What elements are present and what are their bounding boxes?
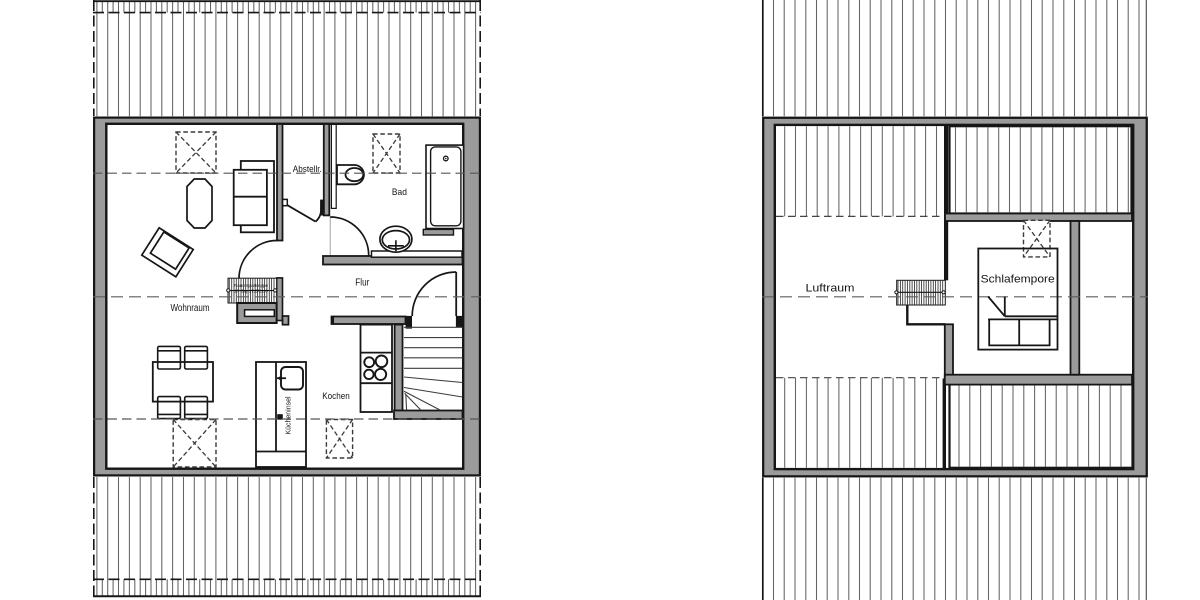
svg-text:Flur: Flur: [355, 277, 370, 288]
svg-text:Raumspartreppe: Raumspartreppe: [234, 283, 269, 288]
svg-text:17 Stg 17,5/21,0: 17 Stg 17,5/21,0: [234, 289, 268, 294]
svg-text:Wohnraum: Wohnraum: [171, 303, 210, 314]
svg-text:Kochen: Kochen: [322, 391, 350, 402]
svg-text:Schlafempore: Schlafempore: [981, 274, 1055, 286]
svg-text:Luftraum: Luftraum: [806, 282, 855, 294]
svg-text:Abstellr.: Abstellr.: [293, 164, 322, 174]
svg-text:Kücheninsel: Kücheninsel: [284, 396, 293, 434]
svg-text:Bad: Bad: [392, 187, 407, 198]
